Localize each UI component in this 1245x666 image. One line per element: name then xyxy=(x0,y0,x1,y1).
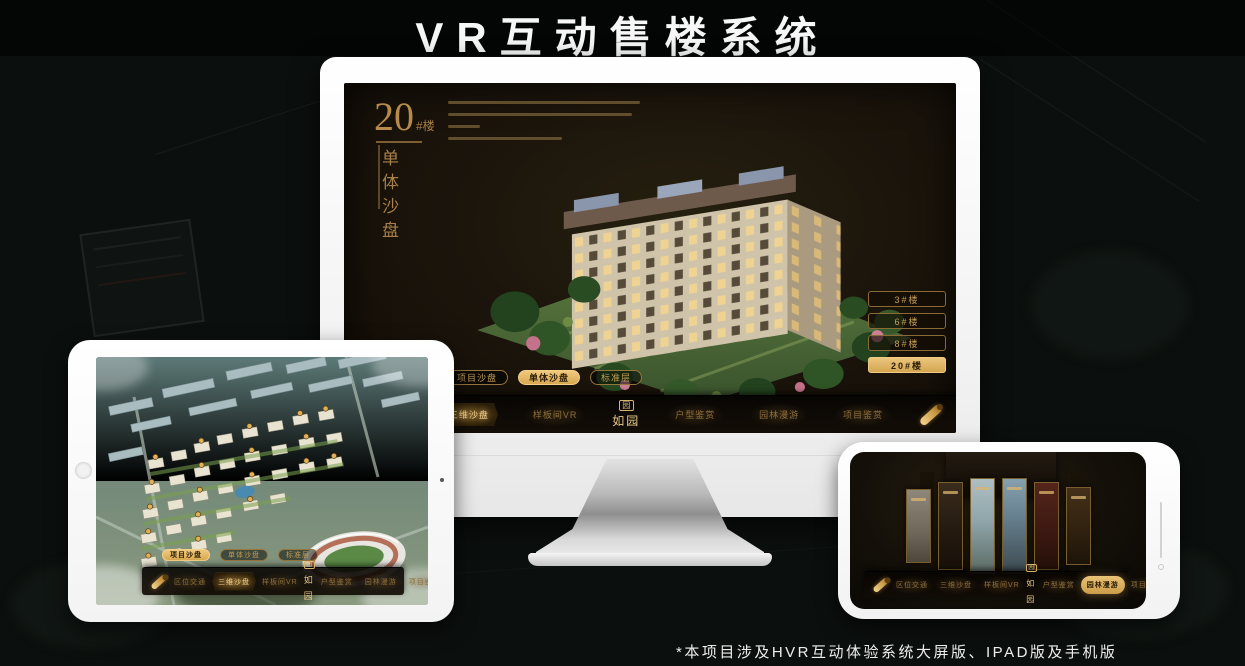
brand-name: 如园 xyxy=(1026,579,1036,604)
description-line xyxy=(448,125,480,128)
nav-item-garden-roam[interactable]: 园林漫游 xyxy=(359,573,403,591)
headline-divider xyxy=(376,141,422,143)
brand-seal-icon: 园 xyxy=(1026,564,1037,572)
brand-seal-icon: 园 xyxy=(304,561,315,569)
monitor-stand xyxy=(536,459,764,559)
scene-gallery xyxy=(892,476,1104,576)
monitor-base xyxy=(528,553,772,566)
building-button[interactable]: 8#楼 xyxy=(868,335,946,351)
building-model-image xyxy=(462,131,920,407)
brand-name: 如园 xyxy=(304,575,315,601)
bg-certificate-plaque xyxy=(79,219,204,338)
building-button-active[interactable]: 20#楼 xyxy=(868,357,946,373)
nav-item-floorplan[interactable]: 户型鉴赏 xyxy=(666,403,724,426)
gallery-panel[interactable] xyxy=(938,482,963,570)
tablet-home-button[interactable] xyxy=(75,462,92,479)
brand-logo: 园 如园 xyxy=(304,561,315,603)
nav-item-project-view[interactable]: 项目鉴赏 xyxy=(1125,576,1146,594)
nav-item-location[interactable]: 区位交通 xyxy=(168,573,212,591)
building-headline: 20#楼 单体沙盘 xyxy=(374,97,435,245)
gallery-panel[interactable] xyxy=(906,489,931,563)
nav-item-floorplan[interactable]: 户型鉴赏 xyxy=(1037,576,1081,594)
tab-standard-floor[interactable]: 标准层 xyxy=(278,549,318,561)
scroll-handle-icon[interactable] xyxy=(919,403,944,426)
page-title: VR互动售楼系统 xyxy=(0,4,1245,65)
brand-logo: 园 如园 xyxy=(612,400,640,429)
nav-item-project-view[interactable]: 项目鉴赏 xyxy=(403,573,428,591)
gallery-panel[interactable] xyxy=(1034,482,1059,570)
nav-item-garden-roam[interactable]: 园林漫游 xyxy=(750,403,808,426)
floor-tabs: 项目沙盘 单体沙盘 标准层 xyxy=(162,549,318,561)
building-button[interactable]: 3#楼 xyxy=(868,291,946,307)
building-button[interactable]: 6#楼 xyxy=(868,313,946,329)
promo-canvas: VR互动售楼系统 20#楼 单体沙盘 xyxy=(0,0,1245,666)
building-number-suffix: #楼 xyxy=(416,119,435,133)
nav-item-showroom-vr[interactable]: 样板间VR xyxy=(978,576,1026,594)
nav-item-garden-roam[interactable]: 园林漫游 xyxy=(1081,576,1125,594)
scroll-handle-icon[interactable] xyxy=(150,573,167,590)
scroll-handle-icon[interactable] xyxy=(872,576,889,593)
brand-seal-icon: 园 xyxy=(619,400,634,411)
tab-single-sandbox[interactable]: 单体沙盘 xyxy=(220,549,268,561)
tab-project-sandbox[interactable]: 项目沙盘 xyxy=(446,370,508,385)
phone-device: 区位交通 三维沙盘 样板间VR 园 如园 户型鉴赏 园林漫游 项目鉴赏 xyxy=(838,442,1180,619)
gallery-panel[interactable] xyxy=(1066,487,1091,565)
bg-road-line xyxy=(981,59,1200,201)
description-line xyxy=(448,101,640,104)
nav-item-showroom-vr[interactable]: 样板间VR xyxy=(256,573,304,591)
phone-screen: 区位交通 三维沙盘 样板间VR 园 如园 户型鉴赏 园林漫游 项目鉴赏 xyxy=(850,452,1146,609)
description-line xyxy=(448,113,632,116)
nav-item-3d-sandbox[interactable]: 三维沙盘 xyxy=(934,576,978,594)
nav-item-location[interactable]: 区位交通 xyxy=(890,576,934,594)
nav-item-project-view[interactable]: 项目鉴赏 xyxy=(834,403,892,426)
footnote-text: *本项目涉及HVR互动体验系统大屏版、IPAD版及手机版 xyxy=(676,641,1117,662)
building-selector: 3#楼 6#楼 8#楼 20#楼 xyxy=(868,291,946,373)
nav-item-showroom-vr[interactable]: 样板间VR xyxy=(524,403,587,426)
main-navbar: 区位交通 三维沙盘 样板间VR 园 如园 户型鉴赏 园林漫游 项目鉴赏 xyxy=(864,571,1128,597)
gallery-panel[interactable] xyxy=(1002,478,1027,574)
gallery-panel[interactable] xyxy=(970,478,995,574)
tablet-camera-icon xyxy=(440,478,444,482)
tablet-screen: 项目沙盘 单体沙盘 标准层 区位交通 三维沙盘 样板间VR 园 如园 户型鉴赏 … xyxy=(96,357,428,605)
brand-name: 如园 xyxy=(612,414,640,428)
phone-power-icon xyxy=(1158,564,1164,570)
building-number: 20 xyxy=(374,94,414,139)
tab-project-sandbox[interactable]: 项目沙盘 xyxy=(162,549,210,561)
nav-item-3d-sandbox[interactable]: 三维沙盘 xyxy=(212,573,256,591)
bg-texture xyxy=(1030,250,1190,360)
brand-logo: 园 如园 xyxy=(1026,564,1037,606)
main-navbar: 区位交通 三维沙盘 样板间VR 园 如园 户型鉴赏 园林漫游 项目鉴赏 xyxy=(142,567,404,595)
tab-single-sandbox[interactable]: 单体沙盘 xyxy=(518,370,580,385)
floor-tabs: 项目沙盘 单体沙盘 标准层 xyxy=(446,370,642,385)
tablet-device: 项目沙盘 单体沙盘 标准层 区位交通 三维沙盘 样板间VR 园 如园 户型鉴赏 … xyxy=(68,340,454,622)
nav-item-floorplan[interactable]: 户型鉴赏 xyxy=(315,573,359,591)
phone-side-slider xyxy=(1160,502,1162,558)
tab-standard-floor[interactable]: 标准层 xyxy=(590,370,642,385)
headline-subtitle-rule xyxy=(378,145,380,209)
